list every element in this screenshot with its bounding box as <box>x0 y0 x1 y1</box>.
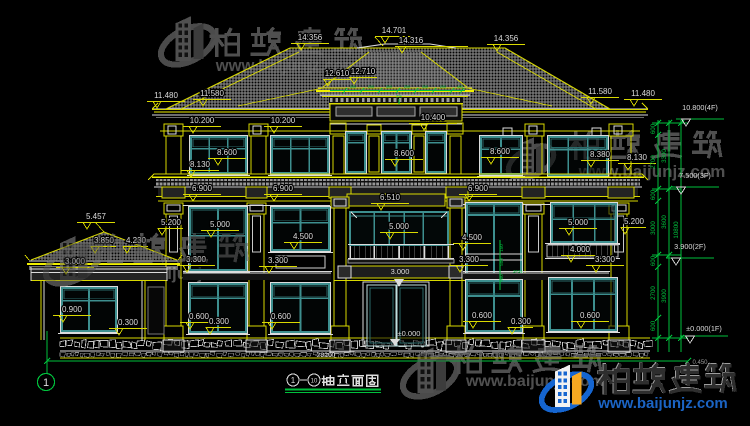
svg-text:4.500: 4.500 <box>293 232 314 241</box>
svg-text:14.356: 14.356 <box>298 33 323 42</box>
svg-text:2700: 2700 <box>650 286 657 300</box>
svg-text:7.500(3F): 7.500(3F) <box>679 171 711 180</box>
svg-text:0.600: 0.600 <box>472 311 493 320</box>
svg-text:3.900(2F): 3.900(2F) <box>674 242 706 251</box>
svg-text:±0.000: ±0.000 <box>398 329 421 338</box>
svg-text:3300: 3300 <box>661 149 668 163</box>
svg-text:300: 300 <box>422 85 428 89</box>
svg-text:12.710: 12.710 <box>351 67 376 76</box>
svg-text:5.000: 5.000 <box>568 218 589 227</box>
svg-text:10.200: 10.200 <box>190 116 215 125</box>
svg-text:6.510: 6.510 <box>380 193 401 202</box>
svg-text:8.130: 8.130 <box>190 160 211 169</box>
svg-text:6.900: 6.900 <box>192 184 213 193</box>
svg-text:0.600: 0.600 <box>271 312 292 321</box>
svg-text:500: 500 <box>499 258 504 266</box>
svg-text:600: 600 <box>650 255 657 266</box>
svg-text:5.000: 5.000 <box>210 220 231 229</box>
svg-text:6.900: 6.900 <box>468 184 489 193</box>
svg-text:8.380: 8.380 <box>590 150 611 159</box>
svg-text:0.300: 0.300 <box>511 317 532 326</box>
svg-text:11.480: 11.480 <box>631 89 655 98</box>
svg-text:200: 200 <box>368 85 374 89</box>
svg-text:0.600: 0.600 <box>189 312 210 321</box>
svg-text:10800: 10800 <box>673 221 680 239</box>
svg-text:3600: 3600 <box>661 215 668 229</box>
svg-text:200: 200 <box>404 85 410 89</box>
svg-text:0.600: 0.600 <box>580 311 601 320</box>
svg-text:28200: 28200 <box>317 352 336 359</box>
svg-text:4.000: 4.000 <box>570 245 591 254</box>
svg-text:600: 600 <box>650 123 657 134</box>
svg-text:10.200: 10.200 <box>271 116 296 125</box>
svg-text:6.900: 6.900 <box>273 184 294 193</box>
svg-text:600: 600 <box>650 320 657 331</box>
svg-text:200: 200 <box>440 85 446 89</box>
svg-text:0.300: 0.300 <box>209 317 230 326</box>
svg-text:3900: 3900 <box>661 289 668 303</box>
svg-text:10.400: 10.400 <box>421 113 446 122</box>
svg-text:14.701: 14.701 <box>382 26 407 35</box>
svg-text:www.baijunjz.com: www.baijunjz.com <box>597 395 727 412</box>
svg-text:3.300: 3.300 <box>459 255 480 264</box>
svg-text:10: 10 <box>311 379 318 385</box>
svg-text:±0.000(1F): ±0.000(1F) <box>686 324 722 333</box>
svg-text:3.000: 3.000 <box>391 267 410 276</box>
svg-text:3.300: 3.300 <box>595 255 616 264</box>
svg-text:8.600: 8.600 <box>490 147 511 156</box>
svg-text:12.610: 12.610 <box>325 69 350 78</box>
svg-text:5.000: 5.000 <box>389 222 410 231</box>
svg-text:5.457: 5.457 <box>86 212 107 221</box>
svg-text:14.356: 14.356 <box>494 34 519 43</box>
svg-text:2700: 2700 <box>650 155 657 169</box>
svg-text:1: 1 <box>43 377 49 389</box>
svg-text:14.316: 14.316 <box>399 36 424 45</box>
svg-text:3.300: 3.300 <box>268 256 289 265</box>
svg-text:490: 490 <box>457 85 463 89</box>
svg-text:2%: 2% <box>396 94 402 99</box>
svg-text:2F24: 2F24 <box>513 269 523 274</box>
svg-text:300: 300 <box>386 85 392 89</box>
svg-text:5.200: 5.200 <box>624 217 645 226</box>
svg-text:10.800(4F): 10.800(4F) <box>682 103 718 112</box>
svg-text:900: 900 <box>499 274 504 282</box>
svg-text:150: 150 <box>499 244 504 252</box>
svg-text:0.900: 0.900 <box>62 305 83 314</box>
svg-text:5.200: 5.200 <box>161 218 182 227</box>
svg-text:8.600: 8.600 <box>217 148 238 157</box>
svg-text:600: 600 <box>650 189 657 200</box>
svg-text:8.130: 8.130 <box>627 153 648 162</box>
svg-text:11.580: 11.580 <box>588 87 612 96</box>
svg-text:3000: 3000 <box>650 221 657 235</box>
svg-text:1: 1 <box>291 376 296 385</box>
svg-text:11.580: 11.580 <box>200 89 224 98</box>
svg-text:11.480: 11.480 <box>154 91 178 100</box>
svg-text:4.500: 4.500 <box>462 233 483 242</box>
svg-text:0.300: 0.300 <box>118 318 139 327</box>
svg-text:8.600: 8.600 <box>394 149 415 158</box>
svg-text:300: 300 <box>350 85 356 89</box>
